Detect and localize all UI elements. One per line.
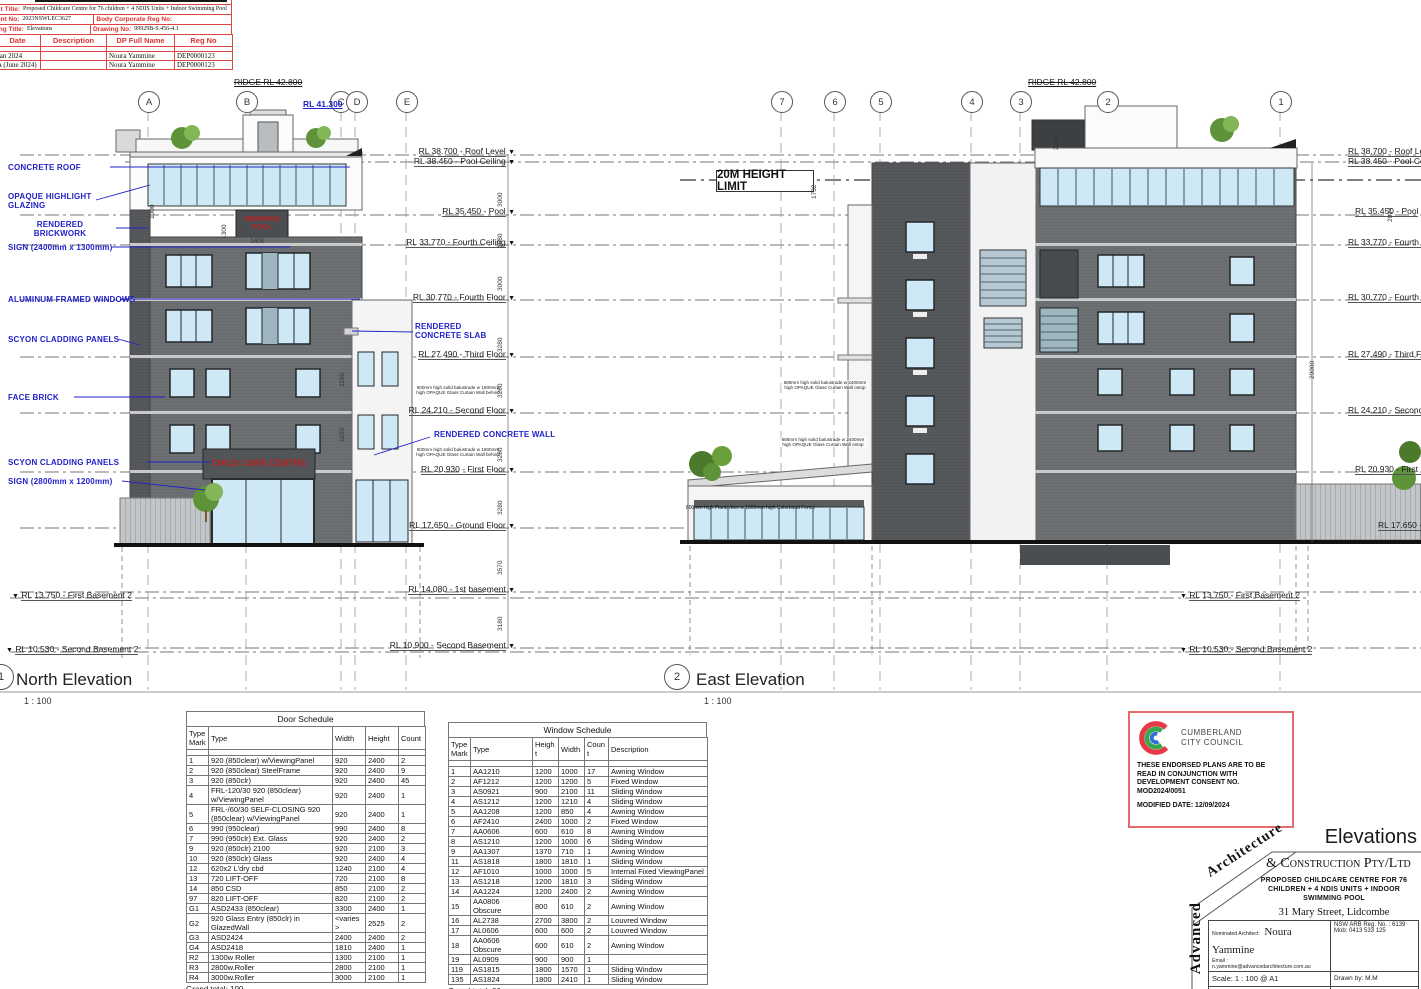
table-row: 14850 CSD85021002 — [187, 884, 426, 894]
table-row: 5FRL-/60/30 SELF-CLOSING 920 (850clear) … — [187, 805, 426, 824]
table-cell: 2400 — [366, 854, 399, 864]
dim-3280-d: 3280 — [497, 501, 504, 515]
table-cell: 920 — [333, 844, 366, 854]
table-cell: 119 — [449, 965, 471, 975]
rl-text: RL 30.770 - Fourth Floor — [413, 292, 506, 303]
rl-text: RL 20.930 - First Floor — [1355, 464, 1421, 475]
table-cell: AF1212 — [471, 777, 533, 787]
table-cell: 920 — [333, 834, 366, 844]
ridge-label-east: RIDGE RL 42.800 — [1028, 77, 1096, 87]
grid-bubble-D: D — [346, 91, 368, 113]
table-cell: 2100 — [366, 844, 399, 854]
table-cell: Noura Yammine — [107, 52, 175, 61]
view-scale-east: 1 : 100 — [704, 696, 732, 706]
table-cell — [41, 52, 107, 61]
table-cell: 2800 — [333, 963, 366, 973]
table-cell: DEP0000123 — [175, 52, 233, 61]
firm-name-advanced: Advanced — [1188, 902, 1205, 974]
table-cell: AA1224 — [471, 887, 533, 897]
table-row: G2920 Glass Entry (850clr) in GlazedWall… — [187, 914, 426, 933]
dim-3280-a: 3280 — [497, 338, 504, 352]
table-cell: 610 — [559, 936, 585, 955]
table-cell: 2400 — [366, 805, 399, 824]
table-row: 7AA06066006108Awning Window — [449, 827, 708, 837]
table-cell: 1200 — [533, 777, 559, 787]
rl-label: ▼ RL 13.750 - First Basement 2 — [12, 590, 132, 600]
table-cell: AS1818 — [471, 857, 533, 867]
council-name: CUMBERLAND CITY COUNCIL — [1181, 728, 1243, 748]
table-cell: 990 (950clr) Ext. Glass — [209, 834, 333, 844]
annotation-rendered-slab: RENDERED CONCRETE SLAB — [415, 322, 507, 340]
table-cell: 3300 — [333, 904, 366, 914]
table-cell: 2100 — [366, 894, 399, 904]
project-address: 31 Mary Street, Lidcombe — [1250, 907, 1418, 918]
rl-text: RL 24.210 - Second Floor — [409, 405, 506, 416]
table-row: 1AA12101200100017Awning Window — [449, 767, 708, 777]
mobile-number: Mob: 0413 533 125 — [1334, 928, 1415, 934]
table-cell: 920 (850clr) Glass — [209, 854, 333, 864]
drawing-title-value: Elevations — [26, 25, 90, 34]
table-cell: AL0909 — [471, 955, 533, 965]
table-row: 135AS1824180024101Sliding Window — [449, 975, 708, 985]
architect-row: Nominated Architect: Noura Yammine Email… — [1209, 921, 1419, 972]
rl-label: RL 17.650 - Ground Floor ▼ — [409, 520, 515, 530]
council-name-line2: CITY COUNCIL — [1181, 738, 1243, 748]
rl-text: RL 13.750 - First Basement 2 — [1189, 590, 1300, 601]
dim-3000-a: 3000 — [497, 193, 504, 207]
table-cell: 1000 — [559, 867, 585, 877]
table-cell: 1 — [585, 975, 609, 985]
table-cell: 900 — [559, 955, 585, 965]
ridge-label-north: RIDGE RL 42.800 — [234, 77, 302, 87]
table-cell: 1 — [187, 756, 209, 766]
rl-label: RL 30.770 - Fourth Floor — [1348, 292, 1421, 302]
dim-3280-c: 3280 — [497, 448, 504, 462]
table-cell: AA0606 — [471, 827, 533, 837]
table-cell: 600 — [533, 926, 559, 936]
council-stamp-header: CUMBERLAND CITY COUNCIL — [1137, 719, 1285, 757]
table-cell: 2400 — [366, 834, 399, 844]
project-title-row: ct Title: Proposed Childcare Centre for … — [0, 4, 232, 14]
table-cell: 8 — [399, 874, 426, 884]
drawing-no-label: Drawing No: — [90, 25, 133, 34]
table-row: 97820 LIFT-OFF82021002 — [187, 894, 426, 904]
rl-label: RL 38.700 - Roof Level — [1348, 146, 1421, 156]
table-cell: 16 — [449, 916, 471, 926]
door-schedule-title: Door Schedule — [186, 711, 425, 726]
table-row: R32800w.Roller280021001 — [187, 963, 426, 973]
table-cell: 135 — [449, 975, 471, 985]
table-row: 19AL09099009001 — [449, 955, 708, 965]
firm-name-construction: & Construction Pty/Ltd — [1266, 856, 1411, 872]
table-cell: 7 — [187, 834, 209, 844]
level-marker-icon: ▼ — [508, 408, 515, 415]
level-marker-icon: ▼ — [508, 240, 515, 247]
table-cell: Awning Window — [609, 897, 708, 916]
table-cell: 600 — [533, 827, 559, 837]
project-title-label: ct Title: — [0, 5, 22, 14]
table-cell: 2 — [187, 766, 209, 776]
table-cell: 2400 — [366, 904, 399, 914]
table-cell: 2100 — [366, 963, 399, 973]
swimming-pool-sign: SWIMMING POOL — [236, 210, 288, 237]
table-cell: 2 — [399, 884, 426, 894]
table-cell: AS1212 — [471, 797, 533, 807]
table-row: 5AA120812008504Awning Window — [449, 807, 708, 817]
window-schedule-total: Grand total: 80 — [448, 985, 707, 989]
table-row: 15AA0806 Obscure8006102Awning Window — [449, 897, 708, 916]
childcare-centre-sign: CHILD CARE CENTRE — [203, 449, 315, 479]
table-cell: 2400 — [366, 824, 399, 834]
rl-label: RL 14.080 - 1st basement ▼ — [408, 584, 515, 594]
column-header: Description — [609, 738, 708, 761]
table-row: 3920 (850clr)920240045 — [187, 776, 426, 786]
table-cell: 17 — [449, 926, 471, 936]
struck-address — [35, 0, 227, 4]
table-cell: 610 — [559, 897, 585, 916]
dim-20000: 20000 — [1309, 361, 1316, 379]
grid-label: 2 — [1105, 97, 1110, 108]
table-cell: 14 — [187, 884, 209, 894]
scale-row: Scale: 1 : 100 @ A1 Drawn by: M.M — [1209, 972, 1419, 987]
table-row: 12AF1010100010005Internal Fixed ViewingP… — [449, 867, 708, 877]
rl-text: RL 24.210 - Second Floor — [1348, 405, 1421, 416]
table-cell: 1210 — [559, 797, 585, 807]
column-header: Date — [0, 35, 41, 47]
height-limit-box: 20M HEIGHT LIMIT — [716, 170, 814, 192]
north-elevation-drawing — [74, 110, 508, 658]
table-cell: 1240 — [333, 864, 366, 874]
table-cell: 2 — [399, 834, 426, 844]
table-cell: 1000 — [559, 817, 585, 827]
rl-label: ▼ RL 10.530 - Second Basement 2 — [1180, 644, 1312, 654]
table-cell: ASD2418 — [209, 943, 333, 953]
window-schedule-table: Type MarkTypeHeightWidthCountDescription… — [448, 737, 708, 985]
level-marker-icon: ▼ — [508, 209, 515, 216]
table-cell: 1800 — [533, 975, 559, 985]
level-marker-icon: ▼ — [1180, 647, 1187, 654]
council-modified-date: MODIFIED DATE: 12/09/2024 — [1137, 802, 1285, 809]
architect-cell: Nominated Architect: Noura Yammine Email… — [1209, 921, 1331, 971]
grid-label: 7 — [779, 97, 784, 108]
table-cell: G3 — [187, 933, 209, 943]
drawing-no-value: 99929B-S.456-4.1 — [133, 25, 179, 34]
table-cell: 920 — [333, 786, 366, 805]
table-cell: 1200 — [533, 807, 559, 817]
table-row: R43000w.Roller300021001 — [187, 973, 426, 983]
table-cell: 3000w.Roller — [209, 973, 333, 983]
rl-text: RL 35.450 - Pool — [442, 206, 505, 217]
table-cell: 13 — [449, 877, 471, 887]
table-cell: 1 — [399, 943, 426, 953]
address-row — [0, 0, 232, 4]
scale-value: Scale: 1 : 100 @ A1 — [1209, 972, 1331, 986]
level-marker-icon: ▼ — [508, 149, 515, 156]
revision-block: ct Title: Proposed Childcare Centre for … — [0, 0, 232, 70]
table-cell: 15 — [449, 897, 471, 916]
table-cell: 920 — [333, 766, 366, 776]
annotation-sign-2800: SIGN (2800mm x 1200mm) — [8, 477, 112, 486]
grid-label: B — [244, 97, 250, 108]
table-cell: 1200 — [533, 797, 559, 807]
table-cell: 5 — [585, 867, 609, 877]
grid-bubble-4: 4 — [961, 91, 983, 113]
table-cell: 18 — [449, 936, 471, 955]
level-marker-icon: ▼ — [508, 587, 515, 594]
view-scale-north: 1 : 100 — [24, 696, 52, 706]
table-cell: 3 — [449, 787, 471, 797]
column-header: Type Mark — [449, 738, 471, 761]
table-cell: AA0606 Obscure — [471, 936, 533, 955]
table-cell: 1810 — [559, 857, 585, 867]
dim-2014: 2014 — [1387, 208, 1394, 222]
table-cell: 5 — [585, 777, 609, 787]
table-cell: 1000 — [559, 767, 585, 777]
level-marker-icon: ▼ — [508, 295, 515, 302]
rl-label: RL 20.930 - First Floor ▼ — [421, 464, 515, 474]
drawing-title-row: ing Title: Elevations Drawing No: 99929B… — [0, 24, 232, 34]
cumberland-council-logo-icon — [1137, 719, 1175, 757]
table-cell: 4 — [585, 797, 609, 807]
grid-label: A — [146, 97, 152, 108]
table-cell: 9 — [399, 766, 426, 776]
table-cell: 920 (850clr) 2100 — [209, 844, 333, 854]
table-cell: 1 — [449, 767, 471, 777]
table-cell: 1 — [399, 953, 426, 963]
table-cell: G4 — [187, 943, 209, 953]
table-cell: 3 — [585, 877, 609, 887]
column-header: Count — [585, 738, 609, 761]
table-cell: 3 — [187, 776, 209, 786]
grid-bubble-6: 6 — [824, 91, 846, 113]
grid-label: 3 — [1018, 97, 1023, 108]
table-cell: Sliding Window — [609, 975, 708, 985]
rl-text: RL 14.080 - 1st basement — [408, 584, 506, 595]
view-title-east: East Elevation — [696, 670, 805, 690]
table-cell — [609, 955, 708, 965]
dim-1000: 1000 — [149, 205, 156, 219]
council-endorsement-text: THESE ENDORSED PLANS ARE TO BE READ IN C… — [1137, 762, 1285, 796]
table-row: 17AL06066006002Louvred Window — [449, 926, 708, 936]
rl-text: RL 17.650 - Ground Floor — [1378, 520, 1421, 531]
rl-label: ▼ RL 10.530 - Second Basement 2 — [6, 644, 138, 654]
grid-label: 1 — [1278, 97, 1283, 108]
table-cell: 9 — [187, 844, 209, 854]
table-cell: A (June 2024) — [0, 61, 41, 70]
table-cell: 8 — [399, 824, 426, 834]
table-cell: 45 — [399, 776, 426, 786]
table-cell: AS1210 — [471, 837, 533, 847]
table-cell: 11 — [585, 787, 609, 797]
column-header: Description — [41, 35, 107, 47]
table-cell: 620x2 L'dry cbd — [209, 864, 333, 874]
annotation-sign-2400: SIGN (2400mm x 1300mm) — [8, 243, 112, 252]
table-cell: 720 LIFT-OFF — [209, 874, 333, 884]
window-schedule: Window Schedule Type MarkTypeHeightWidth… — [448, 722, 707, 989]
column-header: Type — [209, 727, 333, 750]
table-cell: Sliding Window — [609, 857, 708, 867]
table-cell: ASD2433 (850clear) — [209, 904, 333, 914]
architect-label: Nominated Architect: — [1212, 931, 1260, 937]
table-row: 9AA130713707101Awning Window — [449, 847, 708, 857]
annotation-concrete-roof: CONCRETE ROOF — [8, 163, 81, 172]
table-row: 1920 (850clear) w/ViewingPanel92024002 — [187, 756, 426, 766]
level-marker-icon: ▼ — [1180, 593, 1187, 600]
rl-text: RL 10.530 - Second Basement 2 — [15, 644, 138, 655]
table-row: 13AS1218120018103Sliding Window — [449, 877, 708, 887]
table-cell: 1200 — [533, 767, 559, 777]
table-row: 2AF1212120012005Fixed Window — [449, 777, 708, 787]
table-cell: AL2738 — [471, 916, 533, 926]
table-cell: 3000 — [333, 973, 366, 983]
column-header: DP Full Name — [107, 35, 175, 47]
rl-text: RL 33.770 - Fourth Ceiling — [406, 237, 505, 248]
rl-label: RL 33.770 - Fourth Ceiling — [1348, 237, 1421, 247]
table-cell: 14 — [449, 887, 471, 897]
table-cell: 2 — [585, 936, 609, 955]
annotation-scyon-panels-1: SCYON CLADDING PANELS — [8, 335, 119, 344]
balustrade-note-north-2: 600mm high solid balustrade w 1800mm hig… — [413, 447, 503, 457]
table-cell: AA0806 Obscure — [471, 897, 533, 916]
grid-bubble-A: A — [138, 91, 160, 113]
rl-text: RL 33.770 - Fourth Ceiling — [1348, 237, 1421, 248]
dim-3180: 3180 — [497, 617, 504, 631]
revision-table: DateDescriptionDP Full NameReg No Jan 20… — [0, 34, 233, 70]
table-cell: R2 — [187, 953, 209, 963]
table-cell: 2100 — [366, 864, 399, 874]
rl-label: RL 17.650 - Ground Floor — [1378, 520, 1421, 530]
table-row: 7990 (950clr) Ext. Glass92024002 — [187, 834, 426, 844]
table-cell: Fixed Window — [609, 777, 708, 787]
table-row: 14AA1224120024002Awning Window — [449, 887, 708, 897]
table-cell: R3 — [187, 963, 209, 973]
table-row: R21300w Roller130021001 — [187, 953, 426, 963]
table-cell: 600 — [559, 926, 585, 936]
table-cell: 5 — [187, 805, 209, 824]
table-cell: 2100 — [366, 884, 399, 894]
table-cell: 820 — [333, 894, 366, 904]
table-cell: Awning Window — [609, 847, 708, 857]
revision-header-row: DateDescriptionDP Full NameReg No — [0, 35, 233, 47]
table-cell: 2400 — [366, 766, 399, 776]
table-cell: 6 — [449, 817, 471, 827]
table-cell: 10 — [187, 854, 209, 864]
table-cell: FRL-/60/30 SELF-CLOSING 920 (850clear) w… — [209, 805, 333, 824]
table-cell: 2400 — [366, 933, 399, 943]
table-row: A (June 2024)Noura YammineDEP0000123 — [0, 61, 233, 70]
column-header: Reg No — [175, 35, 233, 47]
table-cell: Sliding Window — [609, 837, 708, 847]
door-schedule-total: Grand total: 100 — [186, 983, 425, 989]
table-row: 6990 (950clear)99024008 — [187, 824, 426, 834]
dim-3280-b: 3280 — [497, 384, 504, 398]
table-cell: 1200 — [533, 837, 559, 847]
table-cell: 6 — [585, 837, 609, 847]
table-row: 18AA0606 Obscure6006102Awning Window — [449, 936, 708, 955]
column-header: Type Mark — [187, 727, 209, 750]
rl-label: RL 38.450 - Pool Ceiling — [1348, 156, 1421, 166]
table-cell: 1 — [585, 857, 609, 867]
council-name-line1: CUMBERLAND — [1181, 728, 1243, 738]
column-header: Count — [399, 727, 426, 750]
table-cell: 900 — [533, 787, 559, 797]
table-cell: 1300 — [333, 953, 366, 963]
table-cell: 5 — [449, 807, 471, 817]
matter-row: ent No: 2023NSWLEC3627 Body Corporate Re… — [0, 14, 232, 24]
table-cell: 2100 — [559, 787, 585, 797]
table-cell: 2400 — [333, 933, 366, 943]
level-marker-icon: ▼ — [6, 647, 13, 654]
table-cell: 1 — [399, 963, 426, 973]
annotation-face-brick: FACE BRICK — [8, 393, 59, 402]
table-cell: 920 — [333, 776, 366, 786]
table-row: 11AS1818180018101Sliding Window — [449, 857, 708, 867]
table-cell: 1200 — [533, 877, 559, 887]
table-cell: 4 — [187, 786, 209, 805]
table-cell: 4 — [449, 797, 471, 807]
table-cell: FRL-120/30 920 (850clear) w/ViewingPanel — [209, 786, 333, 805]
table-cell: 7 — [449, 827, 471, 837]
table-cell: 920 (850clr) — [209, 776, 333, 786]
view-number-text: 2 — [674, 671, 680, 683]
project-title-value: Proposed Childcare Centre for 76 childre… — [22, 5, 228, 14]
view-number-text: 1 — [0, 671, 4, 683]
table-cell: 2 — [399, 933, 426, 943]
dim-1732: 1732 — [811, 185, 818, 199]
table-cell: AS1218 — [471, 877, 533, 887]
table-cell: Louvred Window — [609, 916, 708, 926]
table-cell: Awning Window — [609, 807, 708, 817]
planterbox-note-east: 600mm high Planterbox w 1800mm high Colo… — [686, 506, 872, 511]
table-cell: 1000 — [533, 867, 559, 877]
table-cell: 900 — [533, 955, 559, 965]
table-cell: R4 — [187, 973, 209, 983]
table-cell: 4 — [399, 864, 426, 874]
rl-label: RL 24.210 - Second Floor — [1348, 405, 1421, 415]
table-row: 12620x2 L'dry cbd124021004 — [187, 864, 426, 874]
table-cell: Awning Window — [609, 827, 708, 837]
table-row: G1ASD2433 (850clear)330024001 — [187, 904, 426, 914]
table-row: 2920 (850clear) SteelFrame92024009 — [187, 766, 426, 776]
project-name: Proposed Childcare Centre for 76 childre… — [1250, 876, 1418, 903]
table-cell: 1 — [399, 786, 426, 805]
rl-text: RL 13.750 - First Basement 2 — [21, 590, 132, 601]
column-header: Height — [366, 727, 399, 750]
table-cell: 8 — [449, 837, 471, 847]
dim-3000-b: 3000 — [497, 277, 504, 291]
balustrade-note-east-2: 688mm high solid balustrade w 2400mm hig… — [779, 437, 867, 447]
table-cell: 1800 — [533, 857, 559, 867]
table-cell: 1 — [399, 805, 426, 824]
annotation-rendered-brickwork: RENDERED BRICKWORK — [20, 220, 100, 238]
rl-label: ▼ RL 13.750 - First Basement 2 — [1180, 590, 1300, 600]
grid-bubble-3: 3 — [1010, 91, 1032, 113]
table-cell — [41, 61, 107, 70]
level-marker-icon: ▼ — [508, 467, 515, 474]
table-cell: 920 Glass Entry (850clr) in GlazedWall — [209, 914, 333, 933]
drawn-by: Drawn by: M.M — [1331, 972, 1419, 986]
table-cell: 610 — [559, 827, 585, 837]
dim-2400-north: 2400 — [250, 238, 264, 245]
table-cell: 2 — [585, 887, 609, 897]
rl-label: RL 27.490 - Third Floor — [1348, 349, 1421, 359]
table-cell: 2 — [585, 817, 609, 827]
drawing-sheet: ct Title: Proposed Childcare Centre for … — [0, 0, 1421, 989]
table-row: 4AS1212120012104Sliding Window — [449, 797, 708, 807]
table-cell: Sliding Window — [609, 797, 708, 807]
door-schedule-header-row: Type MarkTypeWidthHeightCount — [187, 727, 426, 750]
rl-text: RL 17.650 - Ground Floor — [409, 520, 506, 531]
